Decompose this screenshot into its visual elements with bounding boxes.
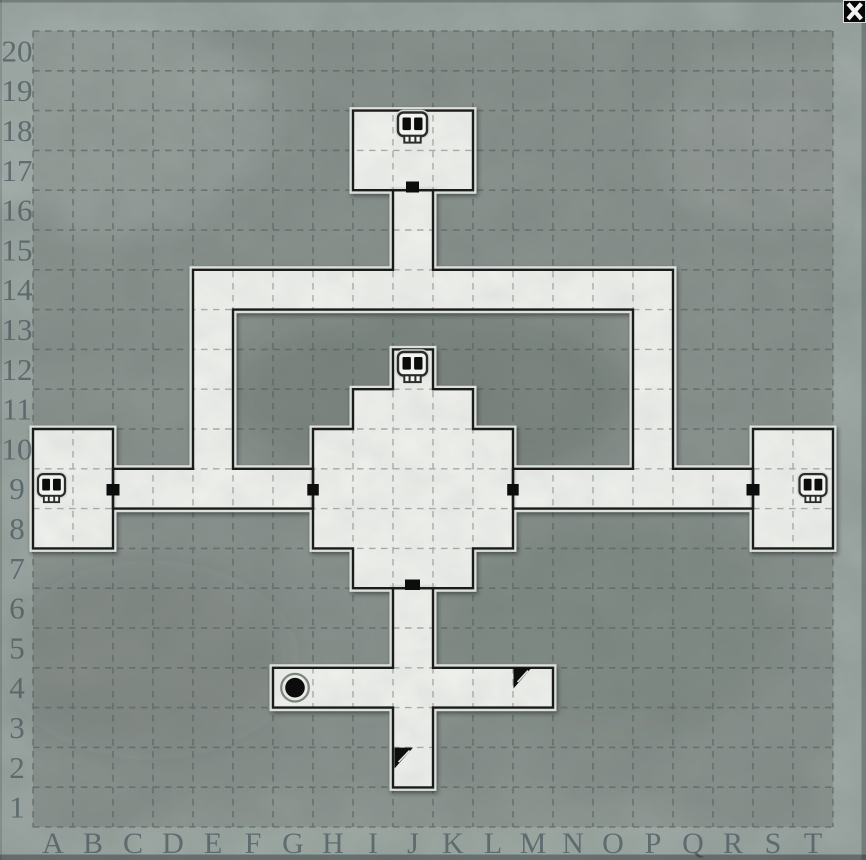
row-label-20: 20 (2, 33, 33, 68)
row-label-19: 19 (2, 73, 33, 108)
row-label-13: 13 (2, 312, 33, 347)
top-edge-shade (0, 0, 866, 3)
row-label-11: 11 (2, 392, 32, 427)
row-label-12: 12 (2, 352, 33, 387)
dungeon-automap: ABCDEFGHIJKLMNOPQRST12345678910111213141… (0, 0, 866, 860)
door-J7-south (405, 580, 420, 591)
row-label-7: 7 (9, 551, 25, 586)
door-L9-east (507, 484, 519, 496)
door-S9-west (747, 484, 760, 496)
right-edge-shade (862, 0, 866, 860)
row-label-8: 8 (9, 511, 25, 546)
skull-icon-A9 (38, 474, 65, 502)
row-label-5: 5 (9, 630, 25, 665)
door-B9-east (107, 484, 120, 496)
skull-icon-J18 (398, 113, 427, 143)
close-button[interactable] (844, 1, 866, 23)
row-label-16: 16 (2, 193, 33, 228)
row-label-1: 1 (9, 790, 25, 825)
row-label-3: 3 (9, 710, 25, 745)
skull-icon-J12 (398, 352, 427, 382)
row-label-9: 9 (9, 471, 25, 506)
bottom-edge-shade (0, 855, 866, 860)
row-label-4: 4 (9, 670, 25, 705)
row-label-6: 6 (9, 591, 25, 626)
door-H9-west (307, 484, 319, 496)
row-label-10: 10 (2, 431, 33, 466)
row-label-14: 14 (2, 272, 34, 307)
left-edge-shade (0, 0, 2, 860)
row-label-15: 15 (2, 232, 33, 267)
door-J17-south (406, 182, 419, 193)
well-icon-G4 (281, 674, 309, 702)
row-label-18: 18 (2, 113, 33, 148)
row-label-17: 17 (2, 153, 33, 188)
skull-icon-T9 (800, 474, 827, 502)
row-label-2: 2 (9, 750, 25, 785)
